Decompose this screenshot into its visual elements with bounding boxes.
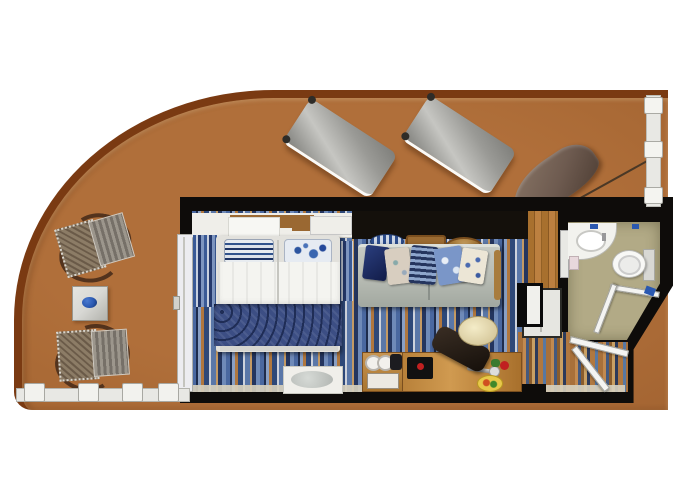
mattress-split-line [277,240,279,308]
deck-chair-2 [51,320,135,390]
toiletry-item [590,224,598,229]
fruit-plate [477,375,503,392]
curtain-left [193,235,217,307]
curtain-right [338,241,353,301]
railing-post [122,383,143,402]
faucet [602,233,606,241]
flower-bloom [500,361,509,370]
bed-duvet [218,262,340,308]
door-handle [173,296,180,310]
railing-post [24,383,45,402]
glass-top-bench [283,366,343,394]
railing-post [78,383,99,402]
bed-pillow-striped [224,239,274,264]
telephone [407,357,433,379]
entry-wall-stub [518,384,546,403]
kettle [390,354,402,370]
bed-footer [220,346,338,351]
minibar-drawer [367,373,399,389]
railing-post [158,383,179,402]
phone-dial [417,363,424,370]
balcony-sliding-door [177,234,193,392]
entry-carpet [518,332,570,392]
bench-glass-oval [291,371,333,388]
partition-post [644,187,663,204]
deck-chair-1 [53,210,137,280]
tv-screen [527,286,540,324]
sofa-armrest [494,250,501,300]
sofa-pillow [458,247,489,285]
toilet-seat [618,255,641,275]
tv-panel [517,283,543,327]
bed-pillow-floral [284,239,332,264]
deck-side-table [72,286,108,321]
toiletry-item [632,224,639,229]
blue-plate [82,297,97,308]
partition-post [644,97,663,114]
minibar-cabinet [362,352,404,392]
bed-paisley-blanket [214,304,342,346]
partition-post [644,141,663,158]
stateroom-floor-plan [0,0,680,491]
flower-leaves [491,359,500,367]
nightstand [310,216,352,235]
deck-chair-footrest [91,329,130,377]
desk-chair-cushion [458,316,498,346]
bathroom-accessory [569,256,579,270]
door-frame-line [183,237,185,387]
